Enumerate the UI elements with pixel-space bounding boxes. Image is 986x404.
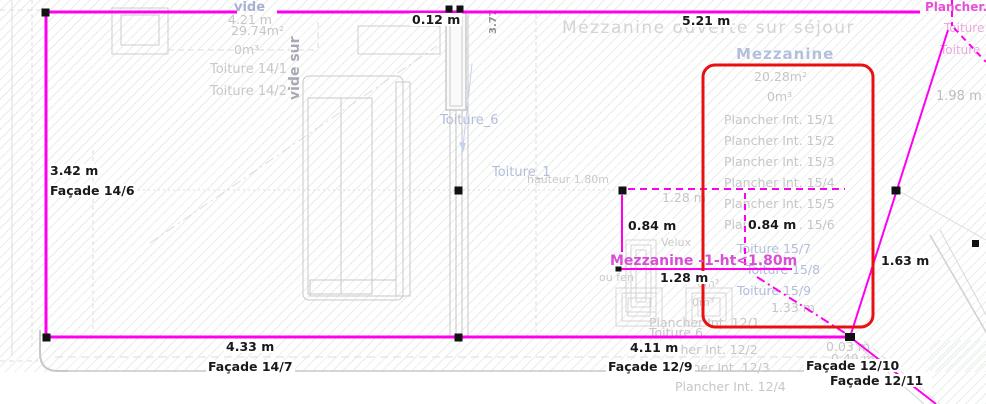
vertex-handle[interactable] <box>42 9 50 17</box>
wall-facade-12-10[interactable] <box>850 30 948 337</box>
dim-label-wall-thickness[interactable]: 0.12 m <box>410 13 462 26</box>
dim-label-velux-width[interactable]: 1.28 m <box>658 271 710 284</box>
floor-plan-canvas[interactable]: vide 4.21 m 29.74m² 0m³ Toiture 14/1 Toi… <box>0 0 986 404</box>
facade-label-14-6: Façade 14/6 <box>48 184 137 197</box>
facade-label-14-7: Façade 14/7 <box>206 360 295 373</box>
dim-label-diagonal[interactable]: 1.63 m <box>879 254 931 267</box>
vertex-handle[interactable] <box>892 187 901 195</box>
dim-label-velux-height[interactable]: 0.84 m <box>626 219 678 232</box>
facade-label-12-9: Façade 12/9 <box>606 360 695 373</box>
vertex-handles <box>42 6 980 342</box>
walls <box>45 0 986 404</box>
plancher-corner-text: Plancher. <box>925 1 986 14</box>
wall-dashed-right-branch[interactable] <box>954 28 986 62</box>
furniture-bed-outline <box>303 76 410 300</box>
vertex-handle[interactable] <box>43 334 51 342</box>
vertex-handle[interactable] <box>455 334 463 342</box>
vertex-handle[interactable] <box>972 240 979 247</box>
dim-label-bottom-left[interactable]: 4.33 m <box>224 340 276 353</box>
roof-window-outline <box>112 8 440 54</box>
vertex-handle[interactable] <box>845 333 855 341</box>
mezzanine-height-label: Mezzanine -1-ht<1.80m <box>610 254 797 269</box>
facade-label-12-11: Façade 12/11 <box>828 374 925 387</box>
dim-label-velux-height-2[interactable]: 0.84 m <box>746 218 798 231</box>
facade-label-12-10: Façade 12/10 <box>804 359 901 372</box>
vertex-handle[interactable] <box>455 187 463 195</box>
dim-label-bottom-right[interactable]: 4.11 m <box>628 341 680 354</box>
vertex-handle[interactable] <box>619 187 627 195</box>
interior-partition-wall <box>446 13 468 337</box>
dim-label-top[interactable]: 5.21 m <box>680 14 732 27</box>
dim-label-left[interactable]: 3.42 m <box>48 164 100 177</box>
